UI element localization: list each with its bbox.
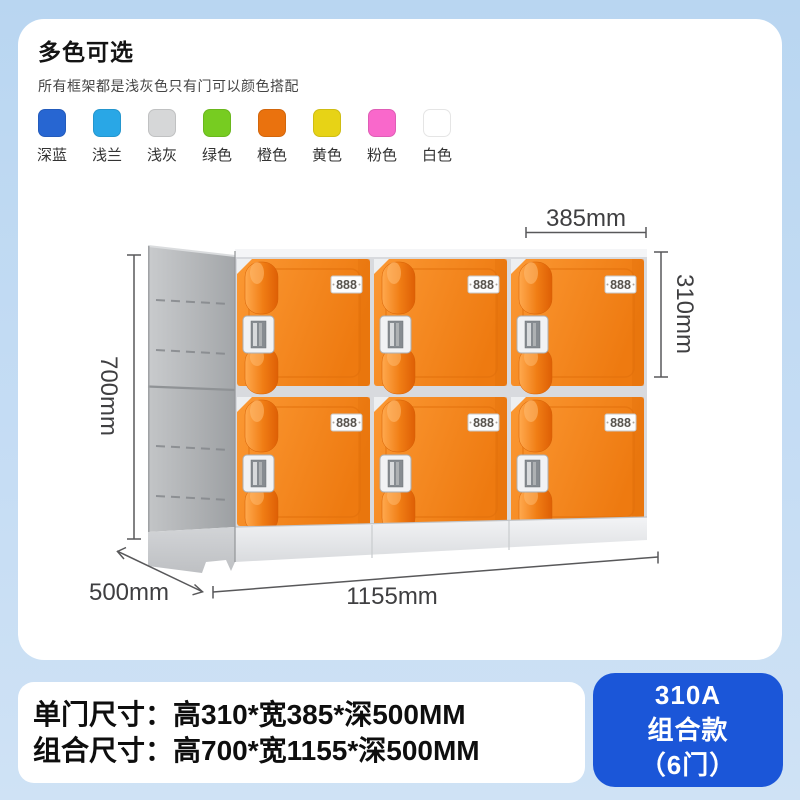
svg-text:888: 888 (336, 278, 357, 292)
locker-top-edge (235, 249, 647, 257)
locker-illustration: 888 888 (58, 179, 718, 619)
door-number-sticker: 888 (605, 414, 636, 431)
color-option-green[interactable]: 绿色 (200, 109, 234, 165)
color-option-dark-blue[interactable]: 深蓝 (35, 109, 69, 165)
color-option-yellow[interactable]: 黄色 (310, 109, 344, 165)
color-swatch (203, 109, 231, 137)
color-option-light-blue[interactable]: 浅兰 (90, 109, 124, 165)
model-door-count: （6门） (640, 748, 736, 783)
dim-depth-label: 500mm (89, 579, 169, 606)
locker-door: 888 (511, 397, 644, 533)
color-option-light-gray[interactable]: 浅灰 (145, 109, 179, 165)
locker-door: 888 (237, 397, 370, 533)
color-swatch (258, 109, 286, 137)
color-swatch (93, 109, 121, 137)
dim-total-width-label: 1155mm (346, 583, 438, 610)
color-swatch (148, 109, 176, 137)
spec-single-door: 单门尺寸：高310*宽385*深500MM (33, 697, 585, 733)
svg-text:888: 888 (473, 416, 494, 430)
svg-text:888: 888 (473, 278, 494, 292)
dim-total-height-label: 700mm (95, 356, 122, 436)
color-swatch-label: 绿色 (202, 144, 232, 165)
color-swatch (38, 109, 66, 137)
color-swatch (368, 109, 396, 137)
locker-door: 888 (237, 259, 370, 394)
spec-box: 单门尺寸：高310*宽385*深500MM 组合尺寸：高700*宽1155*深5… (18, 682, 585, 783)
color-swatch-list: 深蓝 浅兰 浅灰 绿色 橙色 黄色 (35, 109, 454, 165)
locker-side-base (148, 527, 235, 573)
door-number-sticker: 888 (331, 276, 362, 293)
locker-door: 888 (511, 259, 644, 394)
door-number-sticker: 888 (468, 414, 499, 431)
locker-door: 888 (374, 259, 507, 394)
color-swatch (423, 109, 451, 137)
color-swatch-label: 橙色 (257, 144, 287, 165)
color-swatch-label: 白色 (422, 144, 452, 165)
door-number-sticker: 888 (468, 276, 499, 293)
section-subtitle: 所有框架都是浅灰色只有门可以颜色搭配 (38, 76, 454, 96)
door-number-sticker: 888 (331, 414, 362, 431)
color-options-section: 多色可选 所有框架都是浅灰色只有门可以颜色搭配 深蓝 浅兰 浅灰 绿色 橙色 (38, 33, 454, 165)
color-option-orange[interactable]: 橙色 (255, 109, 289, 165)
color-swatch-label: 浅兰 (92, 144, 122, 165)
product-card: 多色可选 所有框架都是浅灰色只有门可以颜色搭配 深蓝 浅兰 浅灰 绿色 橙色 (18, 19, 782, 660)
dim-door-height-label: 310mm (671, 274, 698, 354)
color-swatch-label: 深蓝 (37, 144, 67, 165)
color-option-white[interactable]: 白色 (420, 109, 454, 165)
section-title: 多色可选 (38, 33, 454, 67)
model-name: 组合款 (647, 713, 728, 748)
color-option-pink[interactable]: 粉色 (365, 109, 399, 165)
locker-side-panel (148, 246, 235, 573)
door-number-sticker: 888 (605, 276, 636, 293)
model-code: 310A (655, 678, 721, 713)
spec-combined: 组合尺寸：高700*宽1155*深500MM (33, 733, 585, 769)
color-swatch-label: 黄色 (312, 144, 342, 165)
model-badge: 310A 组合款 （6门） (593, 673, 783, 787)
color-swatch-label: 浅灰 (147, 144, 177, 165)
locker-door: 888 (374, 397, 507, 533)
svg-text:888: 888 (336, 416, 357, 430)
color-swatch (313, 109, 341, 137)
svg-text:888: 888 (610, 416, 631, 430)
svg-text:888: 888 (610, 278, 631, 292)
dim-door-width-label: 385mm (546, 205, 626, 232)
color-swatch-label: 粉色 (367, 144, 397, 165)
